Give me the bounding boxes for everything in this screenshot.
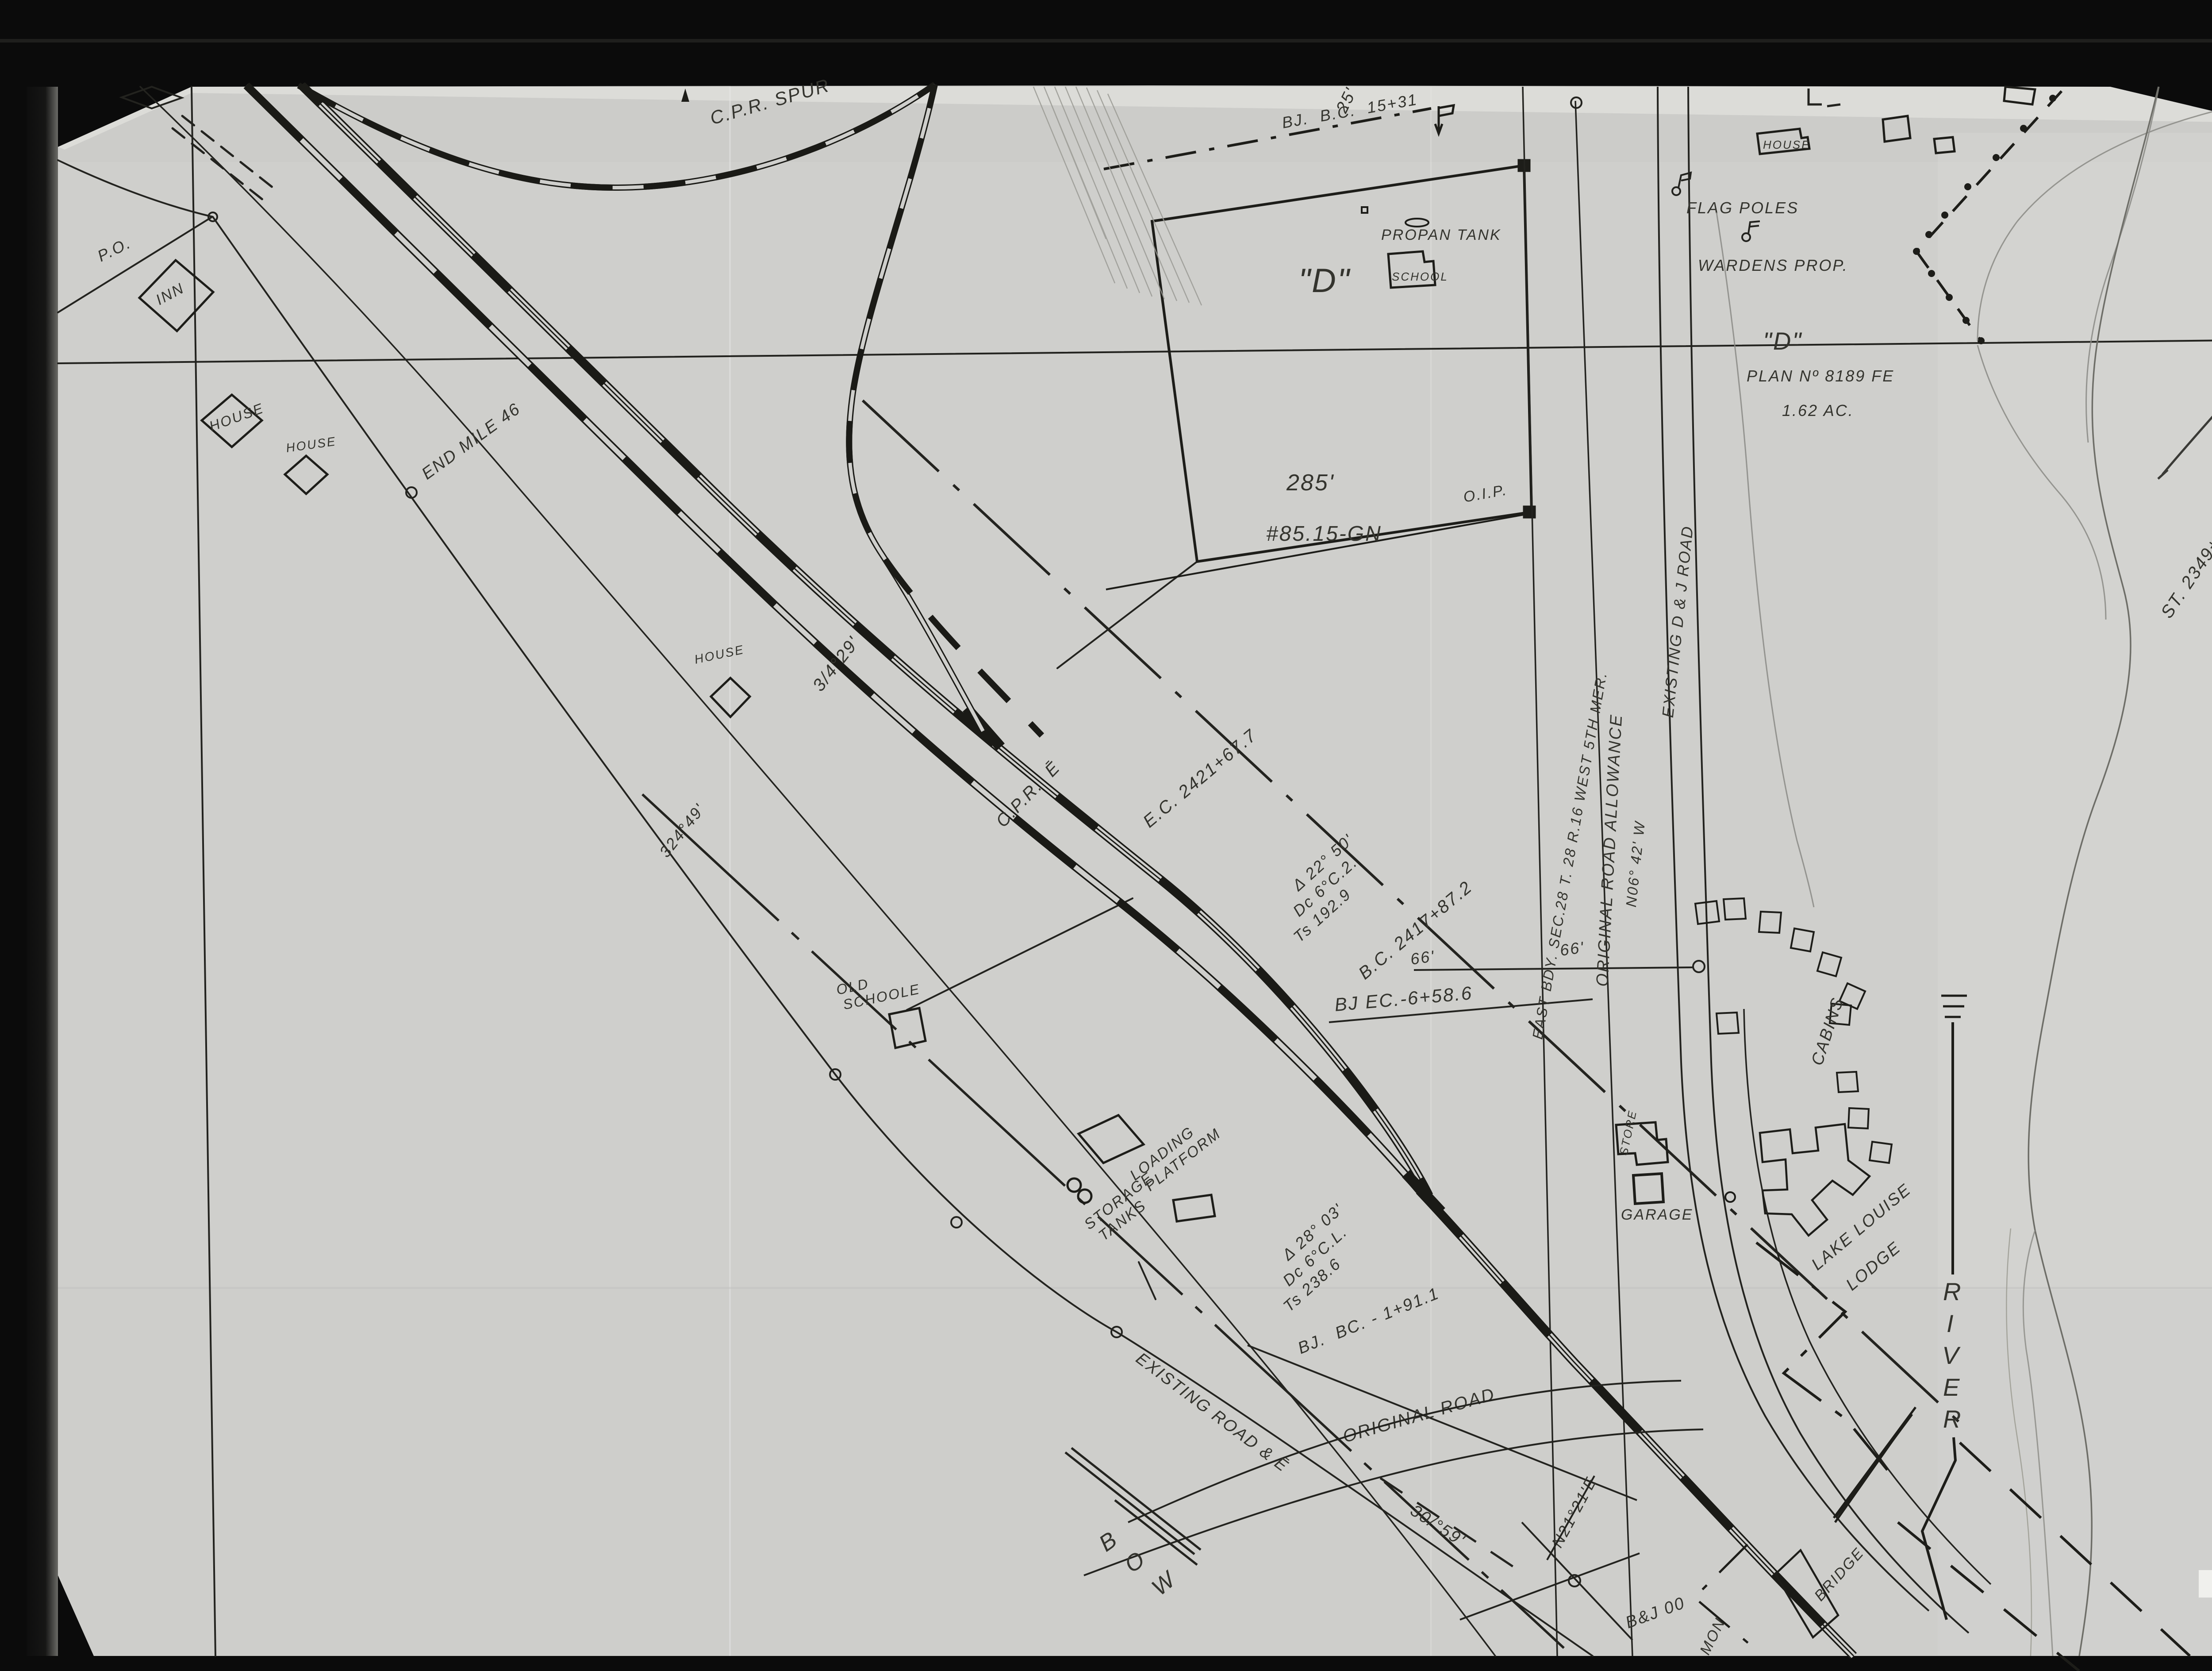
svg-text:HOUSE: HOUSE: [1763, 138, 1810, 151]
svg-text:66': 66': [1559, 938, 1586, 959]
svg-text:WARDENS PROP.: WARDENS PROP.: [1698, 256, 1848, 274]
svg-text:R: R: [1943, 1278, 1962, 1305]
svg-text:PLAN Nº 8189 FE: PLAN Nº 8189 FE: [1747, 367, 1894, 385]
svg-text:285': 285': [1286, 470, 1335, 496]
svg-text:V: V: [1942, 1341, 1961, 1369]
svg-text:E: E: [1943, 1373, 1961, 1401]
svg-text:#85.15-GN: #85.15-GN: [1266, 522, 1382, 546]
svg-text:SCHOOL: SCHOOL: [1392, 270, 1448, 283]
svg-text:R: R: [1943, 1405, 1962, 1433]
svg-text:"D": "D": [1298, 262, 1351, 300]
svg-text:PROPAN TANK: PROPAN TANK: [1381, 227, 1502, 243]
svg-text:FLAG POLES: FLAG POLES: [1686, 199, 1799, 217]
svg-text:I: I: [1947, 1309, 1955, 1337]
svg-text:"D": "D": [1763, 327, 1802, 355]
svg-text:1.62 AC.: 1.62 AC.: [1782, 401, 1854, 420]
svg-text:66': 66': [1409, 947, 1436, 968]
svg-text:GARAGE: GARAGE: [1621, 1206, 1693, 1223]
